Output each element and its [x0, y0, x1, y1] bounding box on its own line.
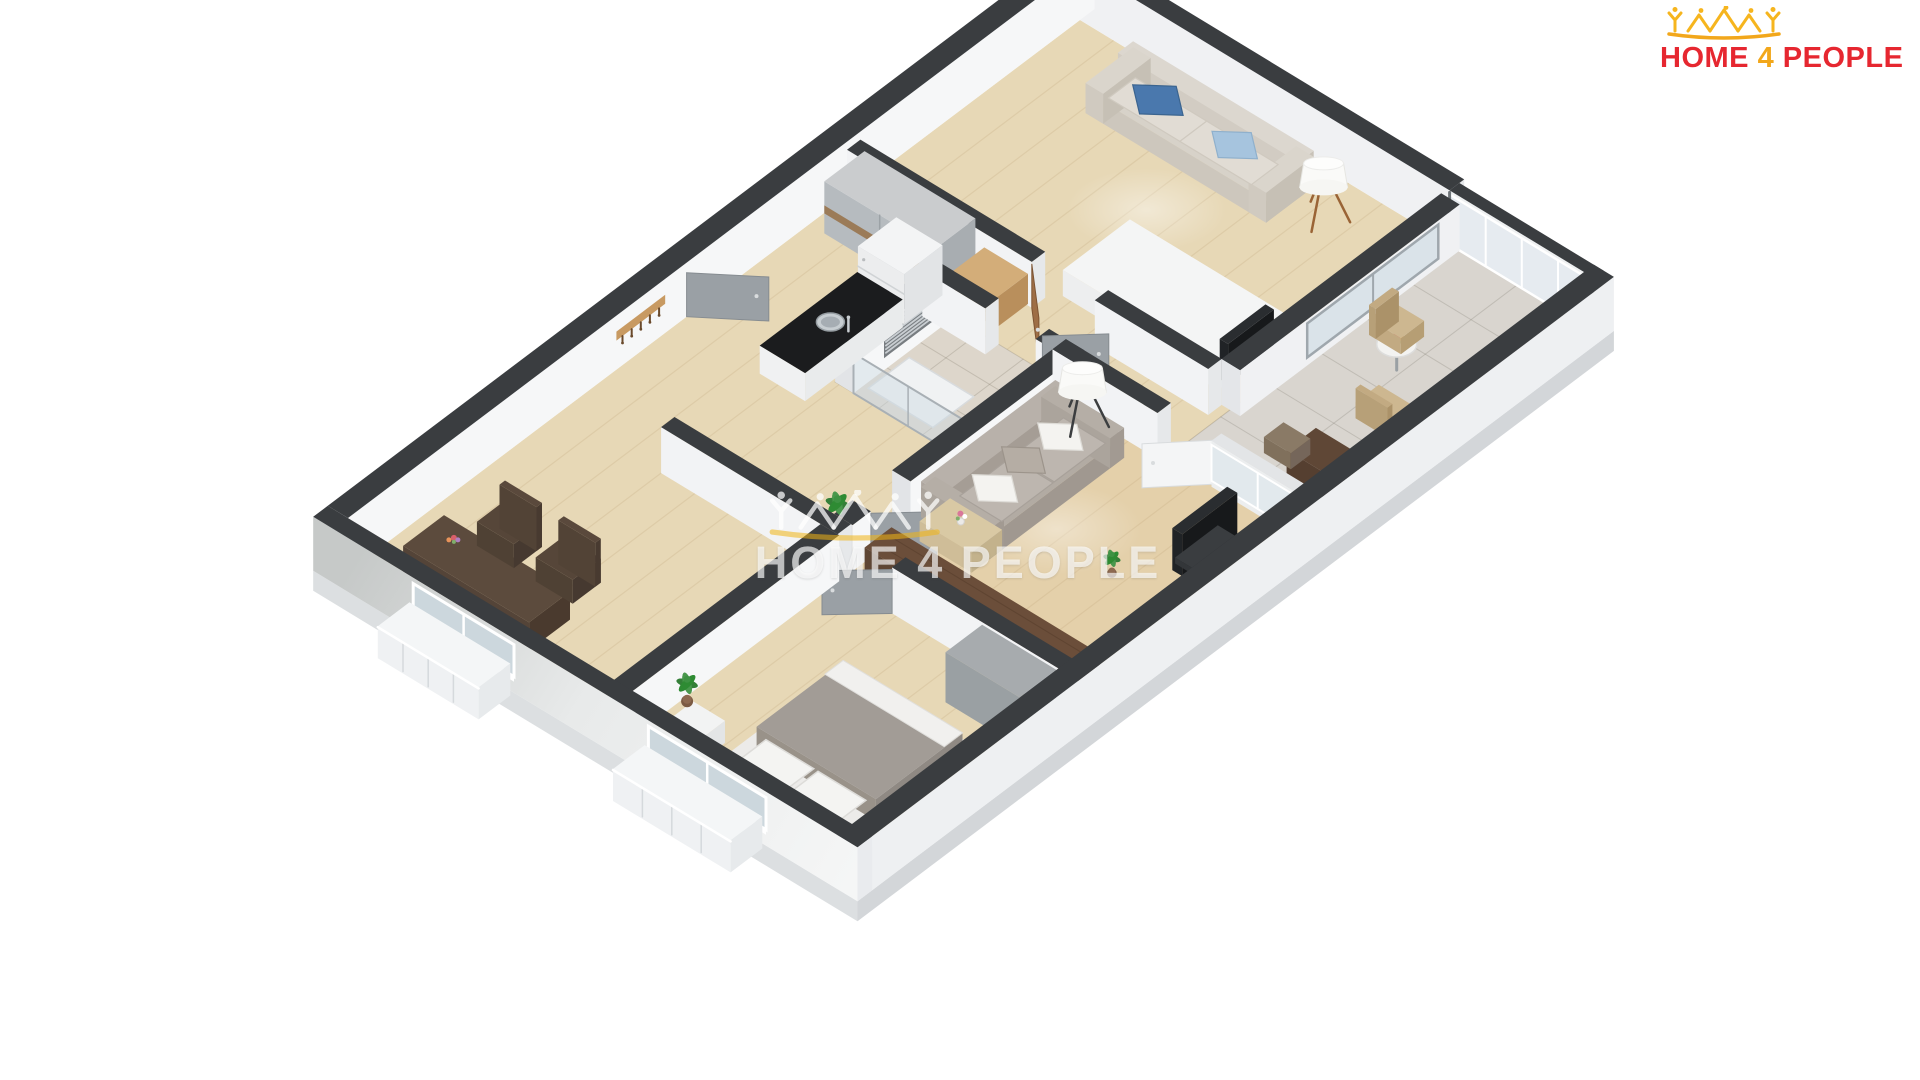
home4people-logo: HOME 4 PEOPLE [1660, 6, 1890, 73]
logo-word-people: PEOPLE [1783, 42, 1904, 74]
throw-pillow [1002, 447, 1046, 474]
logo-word-4: 4 [1758, 42, 1775, 74]
floor-plan-3d [0, 0, 1920, 1080]
home4people-logo-icon [1660, 6, 1788, 42]
logo-word-home: HOME [1660, 42, 1749, 74]
throw-pillow [1212, 131, 1257, 159]
floorplan-page: HOME 4 PEOPLE HOME 4 PEOPLE [0, 0, 1920, 1080]
logo-text: HOME 4 PEOPLE [1660, 44, 1890, 73]
throw-pillow [1038, 423, 1083, 451]
entrance-door-leaf [687, 273, 769, 321]
throw-pillow [972, 475, 1017, 503]
balcony-door-leaf [1142, 440, 1215, 488]
throw-pillow [1133, 85, 1183, 116]
